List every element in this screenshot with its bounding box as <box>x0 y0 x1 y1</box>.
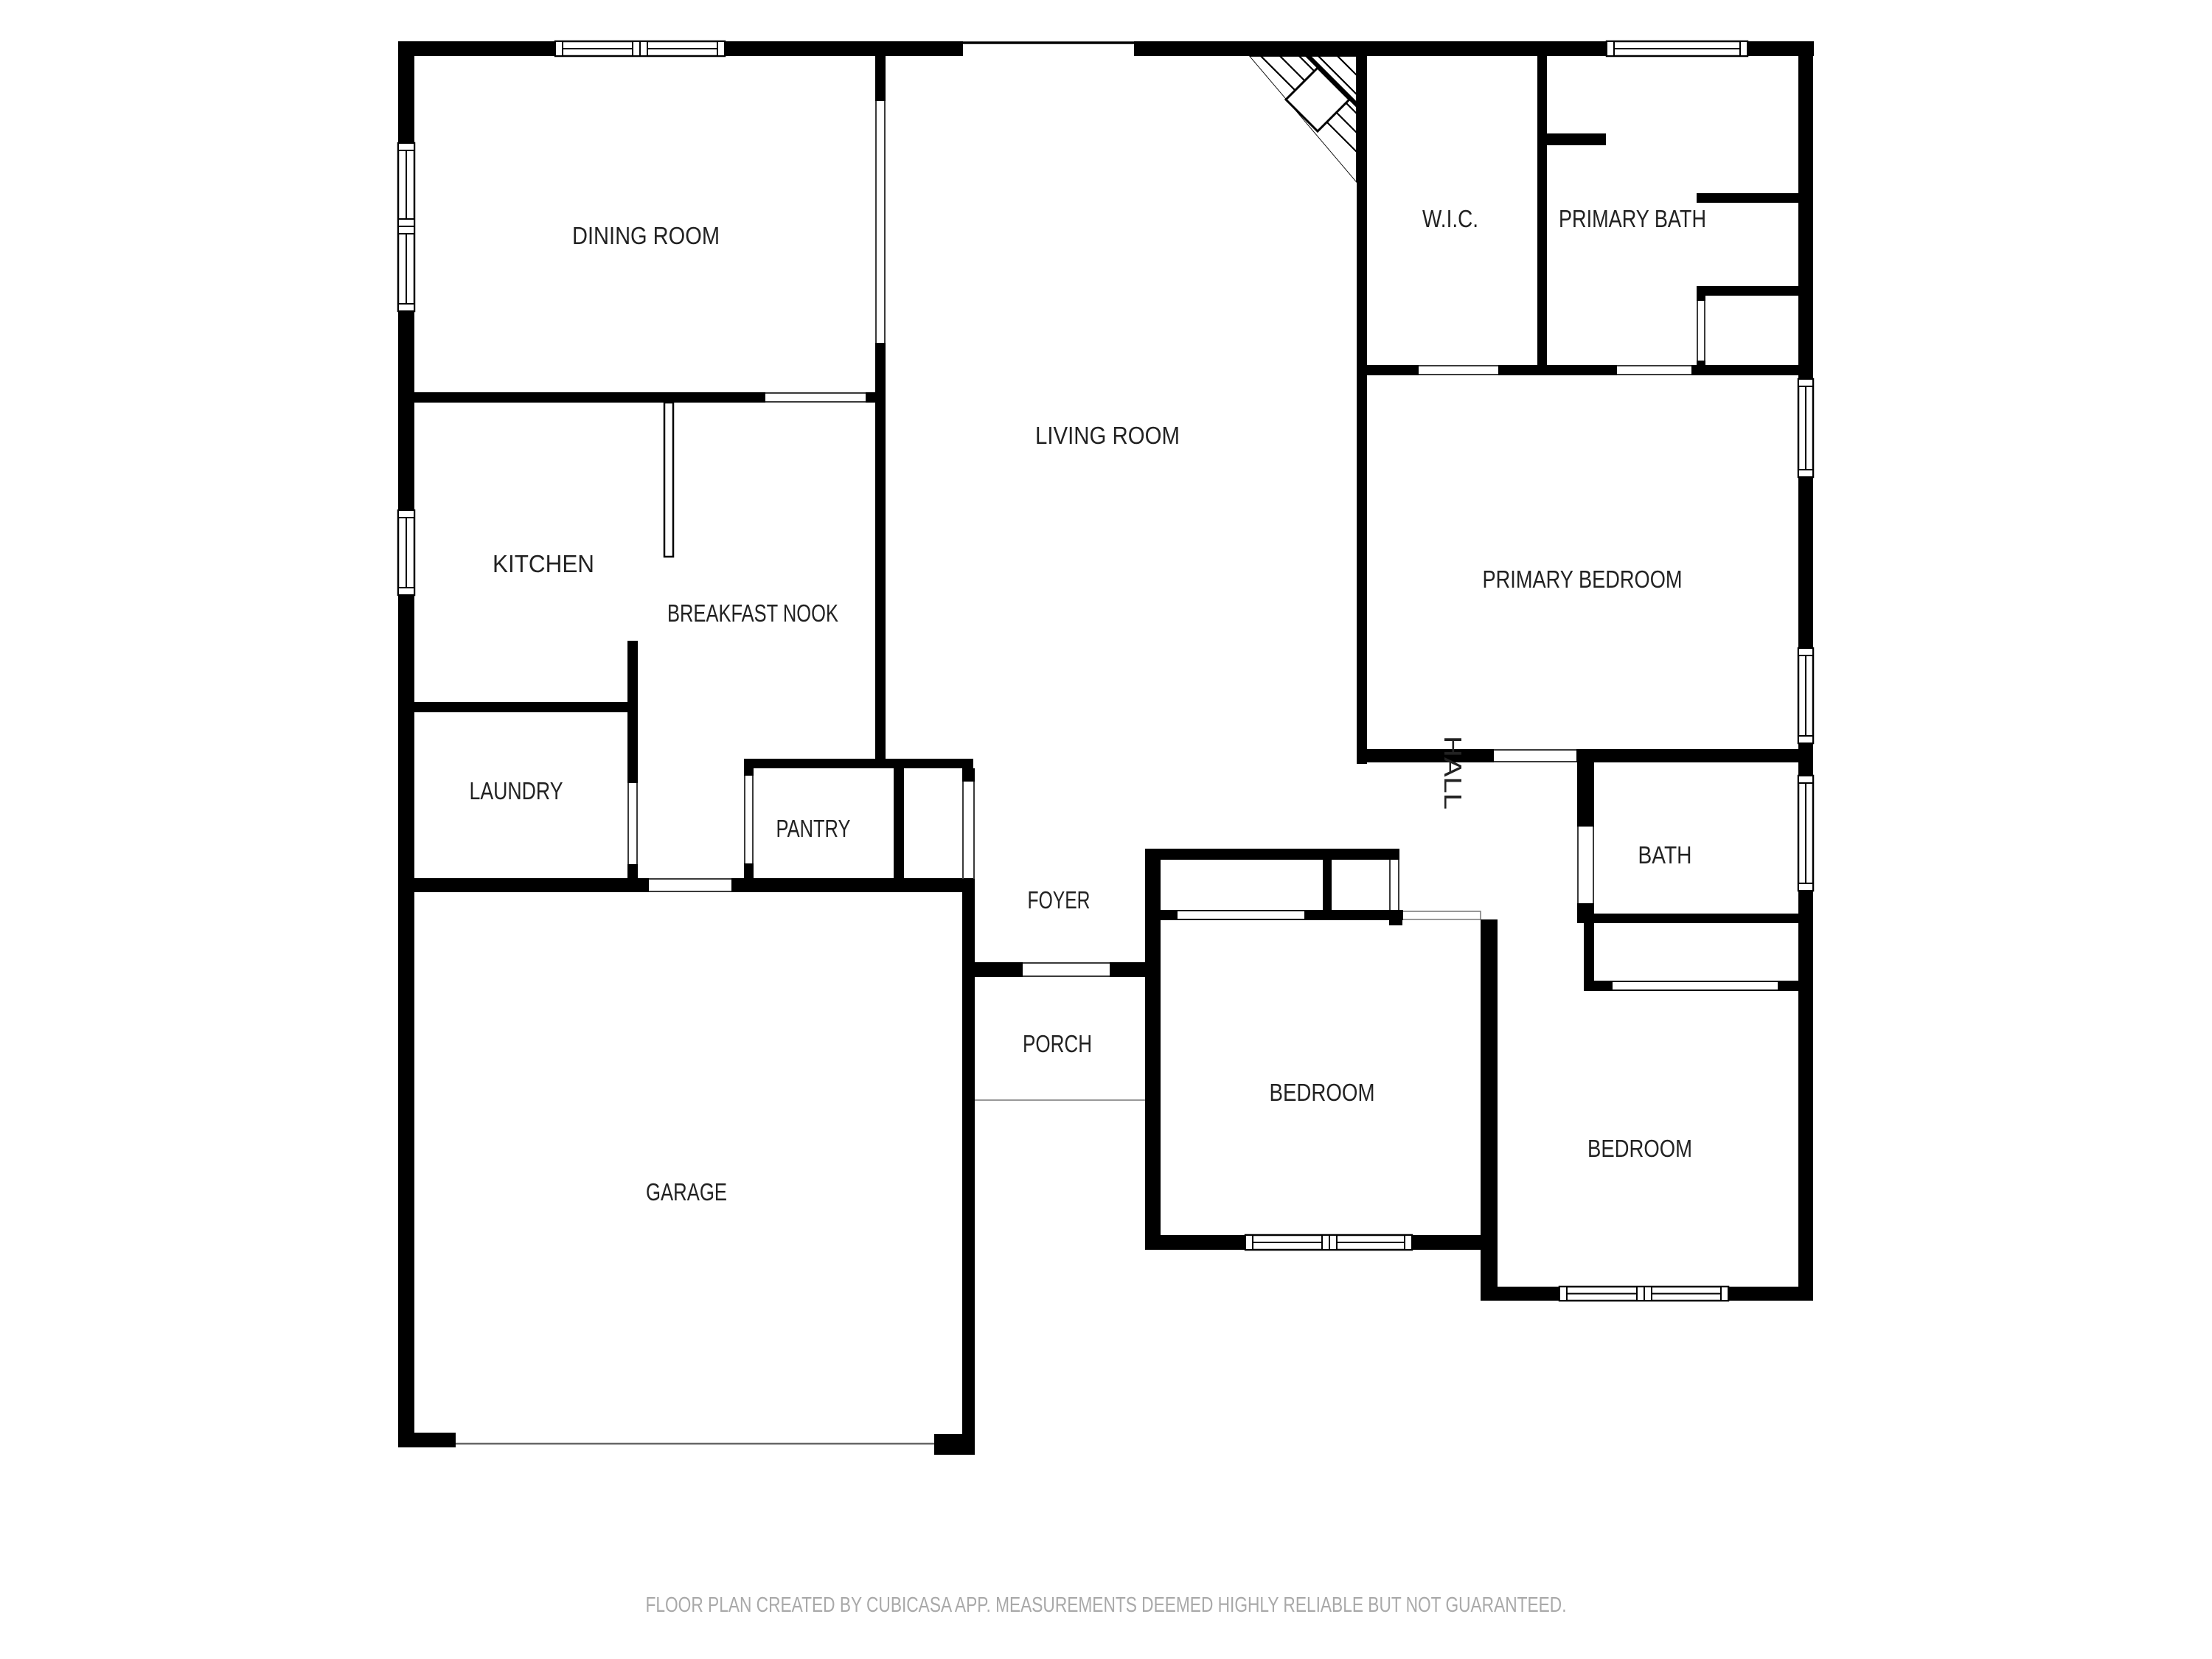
svg-text:LIVING ROOM: LIVING ROOM <box>1035 422 1180 449</box>
svg-text:FLOOR PLAN CREATED BY CUBICASA: FLOOR PLAN CREATED BY CUBICASA APP. MEAS… <box>646 1593 1567 1617</box>
svg-text:LAUNDRY: LAUNDRY <box>470 777 563 804</box>
svg-text:HALL: HALL <box>1439 736 1467 810</box>
svg-text:W.I.C.: W.I.C. <box>1422 205 1478 232</box>
svg-text:PRIMARY BEDROOM: PRIMARY BEDROOM <box>1483 566 1683 593</box>
svg-text:BREAKFAST NOOK: BREAKFAST NOOK <box>667 599 838 627</box>
svg-text:PANTRY: PANTRY <box>776 815 851 842</box>
svg-text:BATH: BATH <box>1638 841 1692 869</box>
svg-text:BEDROOM: BEDROOM <box>1270 1079 1375 1106</box>
svg-text:BEDROOM: BEDROOM <box>1587 1135 1692 1162</box>
svg-text:GARAGE: GARAGE <box>646 1178 727 1206</box>
svg-text:PORCH: PORCH <box>1023 1030 1092 1057</box>
svg-text:FOYER: FOYER <box>1028 886 1091 914</box>
svg-text:DINING ROOM: DINING ROOM <box>572 222 720 249</box>
svg-text:PRIMARY BATH: PRIMARY BATH <box>1559 205 1706 232</box>
svg-text:KITCHEN: KITCHEN <box>493 550 594 577</box>
